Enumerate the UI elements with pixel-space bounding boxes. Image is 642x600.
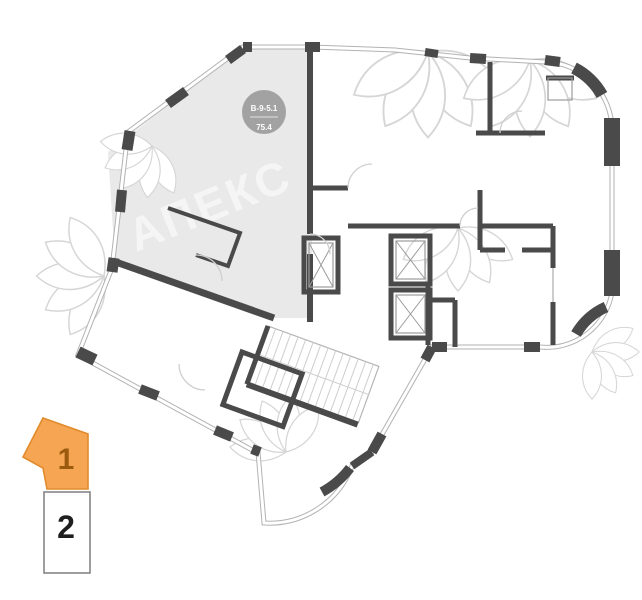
elevator-shaft — [304, 238, 338, 292]
floor-2-label: 2 — [57, 509, 75, 545]
elevator-shaft — [391, 290, 430, 338]
unit-area-label: 75.4 — [256, 123, 272, 132]
floor-selector: 1 2 — [23, 418, 90, 573]
plant-icon — [562, 308, 642, 415]
floor-plan-canvas: АПЕКС — [0, 0, 642, 600]
floor-item-1[interactable]: 1 — [23, 418, 88, 489]
floor-1-shape[interactable] — [23, 418, 88, 489]
floor-1-label: 1 — [58, 443, 75, 476]
floor-item-2[interactable]: 2 — [44, 492, 90, 573]
plant-icon — [37, 211, 116, 341]
unit-code-label: В-9-5.1 — [251, 104, 278, 113]
unit-badge[interactable]: В-9-5.1 75.4 — [242, 90, 286, 134]
floor-plan-page: АПЕКС — [0, 0, 642, 600]
